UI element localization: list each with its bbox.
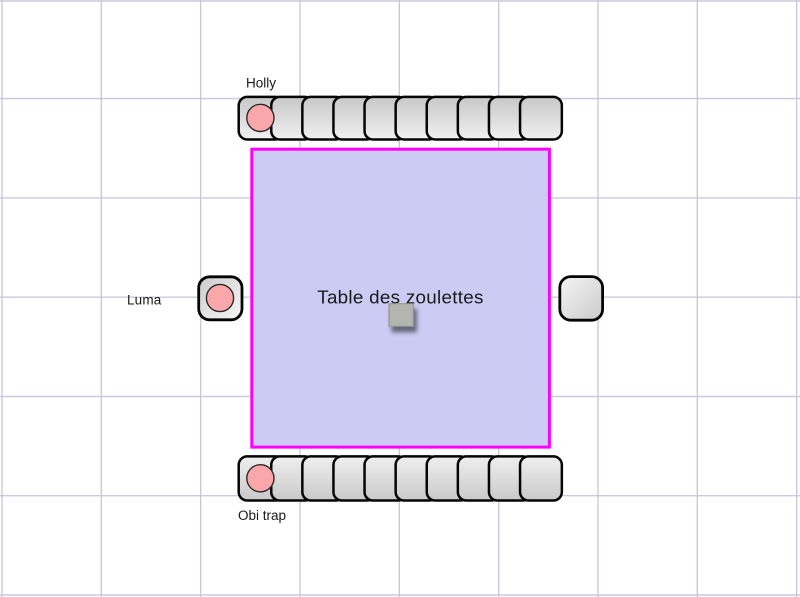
svg-text:Holly: Holly <box>246 75 276 90</box>
svg-text:Luma: Luma <box>127 293 162 308</box>
svg-text:Obi trap: Obi trap <box>238 508 286 523</box>
